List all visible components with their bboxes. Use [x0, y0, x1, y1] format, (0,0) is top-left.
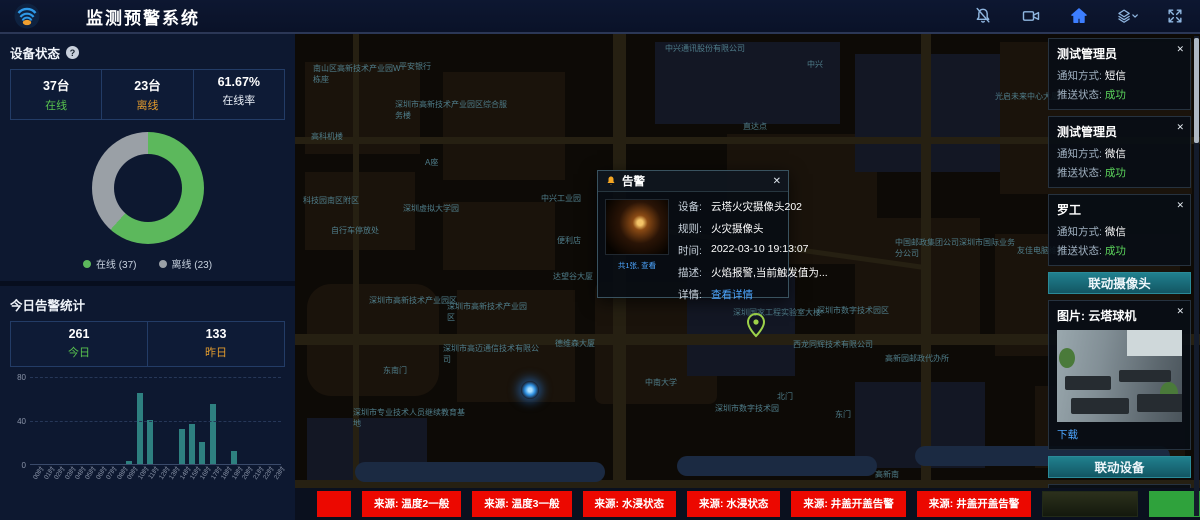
bar	[189, 424, 195, 464]
home-icon[interactable]	[1068, 5, 1090, 27]
alarm-detail-label: 时间:	[678, 243, 711, 258]
bar-column: 13时	[166, 375, 176, 464]
alarm-ticker-item[interactable]: 来源: 水浸状态	[583, 491, 676, 517]
bar-column: 12时	[155, 375, 165, 464]
card-row-label: 通知方式:	[1057, 226, 1102, 238]
ticker-thumbnail-camera[interactable]	[1042, 491, 1138, 517]
camera-snapshot-title: 图片: 云塔球机	[1057, 307, 1182, 324]
close-icon[interactable]: ✕	[1176, 122, 1184, 133]
today-alarm-panel: 今日告警统计 261今日133昨日 00时01时02时03时04时05时06时0…	[0, 286, 295, 520]
stat-cell: 37台在线	[11, 70, 102, 119]
bar-column: 00时	[30, 375, 40, 464]
bar-column: 16时	[197, 375, 207, 464]
camera-snapshot-image[interactable]	[1057, 330, 1182, 422]
app-logo-icon	[14, 3, 40, 29]
alarm-snapshot-image[interactable]	[605, 199, 669, 255]
alarm-bell-icon	[605, 175, 617, 187]
top-header: 监测预警系统	[0, 0, 1200, 34]
alarm-detail-label: 设备:	[678, 199, 711, 214]
alarm-ticker-item[interactable]: 来源: 水浸状态	[687, 491, 780, 517]
stat-label: 在线	[13, 97, 99, 113]
alarm-detail-row: 详情:查看详情	[678, 287, 828, 302]
stat-label: 今日	[13, 344, 145, 360]
right-panel: ✕测试管理员通知方式:短信推送状态:成功✕测试管理员通知方式:微信推送状态:成功…	[1048, 38, 1191, 520]
notification-recipient: 测试管理员	[1057, 123, 1182, 140]
notification-list: ✕测试管理员通知方式:短信推送状态:成功✕测试管理员通知方式:微信推送状态:成功…	[1048, 38, 1191, 266]
bar	[210, 404, 216, 465]
legend-dot	[159, 260, 167, 268]
card-row-label: 推送状态:	[1057, 167, 1102, 179]
bar	[179, 429, 185, 464]
bar-column: 23时	[270, 375, 280, 464]
map-label: 深圳市高新技术产业园区综合服务楼	[395, 100, 507, 122]
today-alarm-stats: 261今日133昨日	[10, 321, 285, 367]
alarm-detail-row: 时间:2022-03-10 19:13:07	[678, 243, 828, 258]
card-row-value: 短信	[1105, 70, 1126, 82]
bar-column: 10时	[135, 375, 145, 464]
card-row-value: 成功	[1105, 245, 1126, 257]
bar-column: 20时	[239, 375, 249, 464]
map-label: 高新南	[875, 470, 915, 481]
card: ✕测试管理员通知方式:短信推送状态:成功	[1048, 38, 1191, 110]
map-label: 东门	[835, 410, 861, 421]
card-row-value: 微信	[1105, 226, 1126, 238]
y-axis-tick: 0	[12, 461, 26, 470]
today-alarm-title: 今日告警统计	[10, 295, 85, 314]
alarm-ticker-item[interactable]: 来源: 温度2一般	[362, 491, 461, 517]
map-label: 深圳市数字技术园区	[817, 306, 895, 317]
map-label: 南山区高新技术产业园W栋座	[313, 64, 401, 86]
page-title: 监测预警系统	[86, 4, 200, 29]
stat-cell: 61.67%在线率	[194, 70, 284, 119]
bar-column: 17时	[208, 375, 218, 464]
alarm-ticker-item[interactable]	[317, 491, 351, 517]
stat-value: 61.67%	[196, 75, 282, 89]
device-marker[interactable]	[521, 381, 539, 399]
view-detail-link[interactable]: 查看详情	[711, 287, 753, 302]
card-row-value: 成功	[1105, 167, 1126, 179]
card-row: 推送状态:成功	[1057, 165, 1182, 180]
map-label: 深圳市专业技术人员继续教育基地	[353, 408, 465, 430]
bar-column: 19时	[229, 375, 239, 464]
alarm-ticker: 来源: 温度2一般来源: 温度3一般来源: 水浸状态来源: 水浸状态来源: 井盖…	[295, 488, 1200, 520]
device-status-donut-chart	[92, 132, 204, 244]
legend-dot	[83, 260, 91, 268]
bar-column: 09时	[124, 375, 134, 464]
alarm-detail-value: 云塔火灾摄像头202	[711, 199, 802, 214]
bar	[231, 451, 237, 464]
device-status-title: 设备状态	[10, 43, 60, 62]
alarm-popup-title: 告警	[622, 173, 645, 189]
bar-column: 08时	[114, 375, 124, 464]
map-label: 高科机楼	[311, 132, 371, 143]
linked-cameras-button[interactable]: 联动摄像头	[1048, 272, 1191, 294]
layers-icon[interactable]	[1116, 5, 1138, 27]
alarm-detail-value: 2022-03-10 19:13:07	[711, 243, 809, 258]
bar	[137, 393, 143, 465]
bar-column: 15时	[187, 375, 197, 464]
legend-item: 离线 (23)	[159, 256, 213, 271]
map-label: 平安银行	[399, 62, 459, 73]
stat-value: 37台	[13, 75, 99, 94]
stat-label: 离线	[104, 97, 190, 113]
card-row-label: 通知方式:	[1057, 70, 1102, 82]
card: ✕罗工通知方式:微信推送状态:成功	[1048, 194, 1191, 266]
stat-value: 133	[150, 327, 282, 341]
stat-cell: 133昨日	[148, 322, 284, 366]
notification-recipient: 罗工	[1057, 201, 1182, 218]
alarm-ticker-item[interactable]: 来源: 井盖开盖告警	[791, 491, 905, 517]
alarm-detail-value: 火焰报警,当前触发值为...	[711, 265, 828, 280]
bar-column: 21时	[250, 375, 260, 464]
alarm-detail-label: 详情:	[678, 287, 711, 302]
bar-column: 11时	[145, 375, 155, 464]
bar-column: 06时	[93, 375, 103, 464]
bar-column: 05时	[82, 375, 92, 464]
map-label: 深圳市数字技术园	[715, 404, 815, 415]
close-icon[interactable]: ✕	[1176, 306, 1184, 317]
close-icon[interactable]: ✕	[1176, 200, 1184, 211]
bar-column: 18时	[218, 375, 228, 464]
alarm-popup: 告警 ✕ 共1张, 查看 设备:云塔火灾摄像头202规则:火灾摄像头时间:202…	[597, 170, 789, 298]
legend-label: 离线 (23)	[172, 256, 213, 271]
stat-label: 在线率	[196, 92, 282, 108]
bar-column: 07时	[103, 375, 113, 464]
legend-label: 在线 (37)	[96, 256, 137, 271]
stat-value: 261	[13, 327, 145, 341]
bar	[199, 442, 205, 464]
card-row: 推送状态:成功	[1057, 243, 1182, 258]
header-icon-group	[972, 5, 1186, 27]
bar-column: 04时	[72, 375, 82, 464]
map-label: 中南大学	[645, 378, 701, 389]
card-row: 推送状态:成功	[1057, 87, 1182, 102]
map-label: 自行车停放处	[331, 226, 421, 237]
map-label: 中国邮政集团公司深圳市国际业务分公司	[895, 238, 1017, 260]
card-row-label: 推送状态:	[1057, 245, 1102, 257]
map-label: 高新园邮政代办所	[885, 354, 989, 365]
card-row: 通知方式:微信	[1057, 146, 1182, 161]
card-row-value: 成功	[1105, 89, 1126, 101]
map-label: 深圳市高新技术产业园区	[447, 302, 527, 324]
alarm-detail-label: 规则:	[678, 221, 711, 236]
bar-column: 03时	[61, 375, 71, 464]
y-axis-tick: 80	[12, 373, 26, 382]
bar	[147, 420, 153, 464]
fullscreen-icon[interactable]	[1164, 5, 1186, 27]
bar-column: 01时	[40, 375, 50, 464]
snapshot-view-link[interactable]: 共1张, 查看	[605, 260, 669, 271]
stat-label: 昨日	[150, 344, 282, 360]
close-icon[interactable]: ✕	[773, 176, 781, 187]
ticker-thumbnail-green[interactable]	[1149, 491, 1200, 517]
alarm-detail-value: 火灾摄像头	[711, 221, 764, 236]
map-label: 德维森大厦	[555, 339, 625, 350]
alarm-ticker-item[interactable]: 来源: 温度3一般	[472, 491, 571, 517]
scrollbar-thumb[interactable]	[1194, 38, 1199, 143]
map-label: 西龙同辉技术有限公司	[793, 340, 873, 351]
card-row-value: 微信	[1105, 148, 1126, 160]
linked-devices-button[interactable]: 联动设备	[1048, 456, 1191, 478]
stat-cell: 261今日	[11, 322, 148, 366]
stat-value: 23台	[104, 75, 190, 94]
map-label: 深圳市高迈通信技术有限公司	[443, 344, 543, 366]
card-row-label: 推送状态:	[1057, 89, 1102, 101]
map-label: 便利店	[557, 236, 597, 247]
stat-cell: 23台离线	[102, 70, 193, 119]
left-sidebar: 设备状态 ? 37台在线23台离线61.67%在线率 在线 (37)离线 (23…	[0, 34, 295, 520]
device-status-panel: 设备状态 ? 37台在线23台离线61.67%在线率 在线 (37)离线 (23…	[0, 34, 295, 286]
location-pin-icon[interactable]	[745, 312, 767, 341]
map-label: 北门	[777, 392, 803, 403]
alarm-detail-row: 设备:云塔火灾摄像头202	[678, 199, 828, 214]
alarm-detail-label: 描述:	[678, 265, 711, 280]
gridline	[30, 377, 281, 378]
legend-item: 在线 (37)	[83, 256, 137, 271]
close-icon[interactable]: ✕	[1176, 44, 1184, 55]
notification-recipient: 测试管理员	[1057, 45, 1182, 62]
map-label: 东南门	[383, 366, 425, 377]
donut-legend: 在线 (37)离线 (23)	[83, 256, 212, 271]
gridline	[30, 421, 281, 422]
card: ✕测试管理员通知方式:微信推送状态:成功	[1048, 116, 1191, 188]
card-row-label: 通知方式:	[1057, 148, 1102, 160]
help-icon[interactable]: ?	[66, 46, 79, 59]
map-label: 中兴	[807, 60, 837, 71]
y-axis-tick: 40	[12, 417, 26, 426]
alarm-detail-row: 描述:火焰报警,当前触发值为...	[678, 265, 828, 280]
bar-column: 14时	[176, 375, 186, 464]
video-camera-icon[interactable]	[1020, 5, 1042, 27]
map-label: A座	[425, 158, 455, 169]
map-label: 深圳虚拟大学园	[403, 204, 503, 215]
bar-column: 22时	[260, 375, 270, 464]
card-row: 通知方式:微信	[1057, 224, 1182, 239]
bell-muted-icon[interactable]	[972, 5, 994, 27]
card-row: 通知方式:短信	[1057, 68, 1182, 83]
camera-snapshot-card: ✕ 图片: 云塔球机 下载	[1048, 300, 1191, 450]
device-status-stats: 37台在线23台离线61.67%在线率	[10, 69, 285, 120]
map-label: 中兴通讯股份有限公司	[665, 44, 747, 55]
hourly-alarm-bar-chart: 00时01时02时03时04时05时06时07时08时09时10时11时12时1…	[10, 375, 285, 503]
alarm-detail-row: 规则:火灾摄像头	[678, 221, 828, 236]
alarm-ticker-item[interactable]: 来源: 井盖开盖告警	[917, 491, 1031, 517]
map-label: 科技园南区附区	[303, 196, 403, 207]
bar-column: 02时	[51, 375, 61, 464]
map-label: 直达点	[743, 122, 783, 133]
download-link[interactable]: 下载	[1057, 427, 1078, 442]
panel-scrollbar	[1194, 36, 1199, 516]
